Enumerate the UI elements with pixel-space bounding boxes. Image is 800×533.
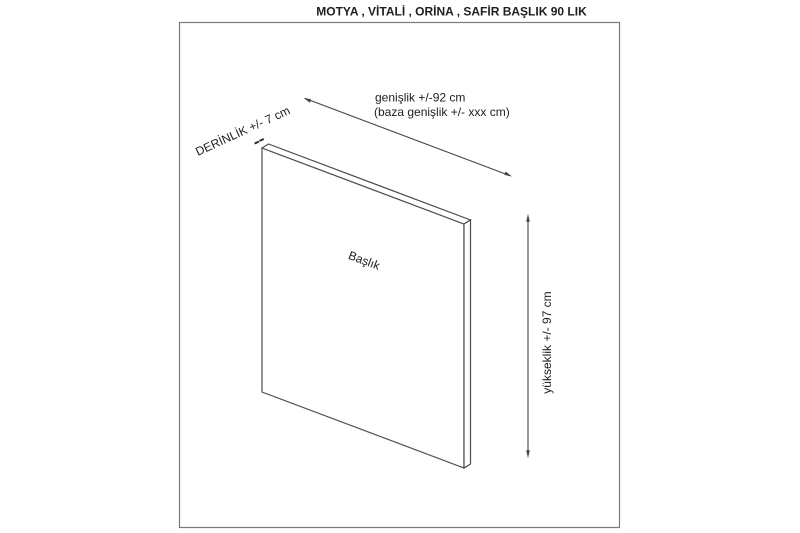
svg-text:MOTYA , VİTALİ , ORİNA , SAFİR: MOTYA , VİTALİ , ORİNA , SAFİR BAŞLIK 90… [316,3,587,18]
svg-text:yükseklik +/- 97 cm: yükseklik +/- 97 cm [540,291,554,393]
svg-text:genişlik +/-92 cm: genişlik +/-92 cm [375,91,465,105]
svg-text:(baza genişlik +/- xxx cm): (baza genişlik +/- xxx cm) [374,105,510,119]
